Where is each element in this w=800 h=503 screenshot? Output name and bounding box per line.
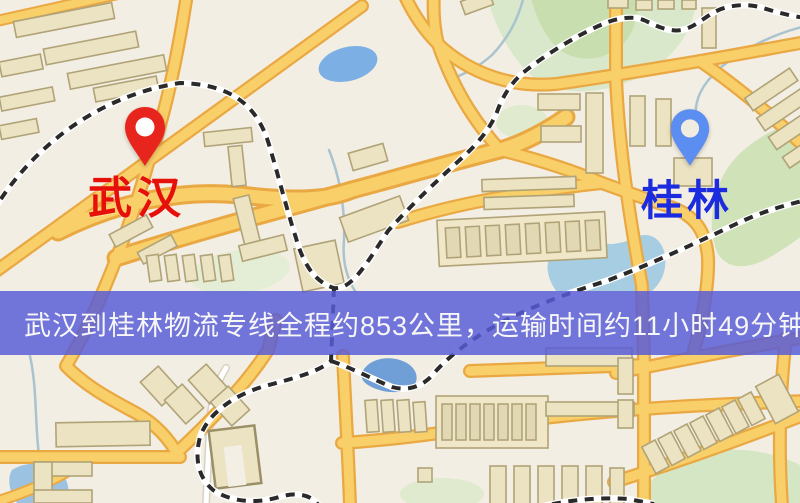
destination-city-label: 桂林 [641, 180, 733, 222]
map-pin-icon [121, 104, 169, 170]
map-pin-icon [667, 106, 713, 170]
route-info-text: 武汉到桂林物流专线全程约853公里，运输时间约11小时49分钟. [24, 304, 800, 343]
route-info-banner: 武汉到桂林物流专线全程约853公里，运输时间约11小时49分钟. [0, 291, 800, 355]
destination-pin-marker[interactable] [667, 106, 713, 170]
map-canvas [0, 0, 800, 503]
logistics-route-map: 武汉 桂林 武汉到桂林物流专线全程约853公里，运输时间约11小时49分钟. [0, 0, 800, 503]
origin-city-label: 武汉 [88, 177, 186, 221]
origin-pin-marker[interactable] [121, 104, 169, 170]
